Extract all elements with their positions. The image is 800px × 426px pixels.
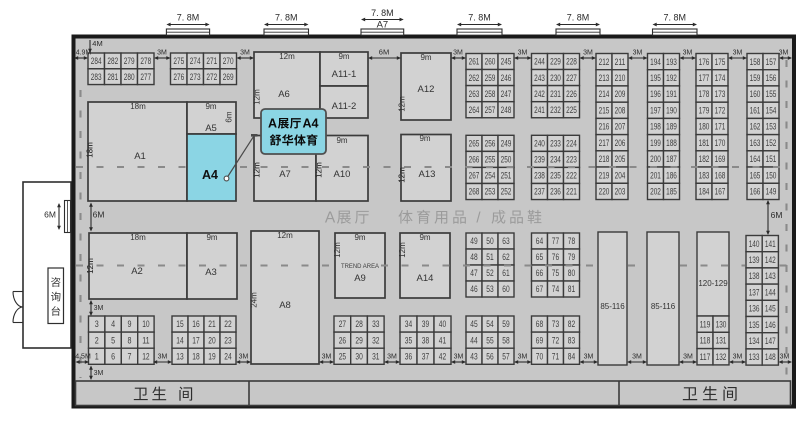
svg-text:19: 19 bbox=[208, 351, 215, 361]
svg-text:24m: 24m bbox=[250, 292, 259, 308]
svg-text:A12: A12 bbox=[418, 84, 435, 95]
svg-text:163: 163 bbox=[750, 138, 761, 148]
svg-text:59: 59 bbox=[502, 319, 509, 329]
svg-text:256: 256 bbox=[485, 139, 496, 149]
svg-text:3M: 3M bbox=[94, 370, 104, 377]
svg-text:7. 8M: 7. 8M bbox=[664, 13, 687, 23]
svg-text:181: 181 bbox=[699, 138, 710, 148]
svg-text:12m: 12m bbox=[333, 242, 342, 258]
svg-text:36: 36 bbox=[405, 351, 412, 361]
svg-text:79: 79 bbox=[568, 252, 575, 262]
svg-text:226: 226 bbox=[566, 89, 577, 99]
svg-text:84: 84 bbox=[568, 351, 575, 361]
svg-text:261: 261 bbox=[469, 57, 480, 67]
svg-text:51: 51 bbox=[486, 252, 493, 262]
svg-text:57: 57 bbox=[502, 351, 509, 361]
svg-text:48: 48 bbox=[470, 252, 477, 262]
svg-text:164: 164 bbox=[750, 154, 761, 164]
svg-text:246: 246 bbox=[501, 73, 512, 83]
svg-text:119: 119 bbox=[700, 319, 711, 330]
svg-text:72: 72 bbox=[552, 335, 559, 345]
svg-text:39: 39 bbox=[422, 319, 429, 329]
svg-text:131: 131 bbox=[716, 336, 727, 347]
svg-text:237: 237 bbox=[534, 187, 545, 197]
svg-text:202: 202 bbox=[650, 187, 661, 197]
svg-text:61: 61 bbox=[502, 268, 509, 278]
svg-text:133: 133 bbox=[749, 352, 760, 363]
svg-text:6M: 6M bbox=[771, 210, 783, 220]
svg-text:216: 216 bbox=[599, 122, 610, 132]
svg-text:173: 173 bbox=[715, 89, 726, 99]
svg-text:50: 50 bbox=[486, 236, 493, 246]
svg-text:TREND AREA: TREND AREA bbox=[341, 264, 379, 270]
svg-text:6M: 6M bbox=[44, 210, 56, 220]
svg-text:117: 117 bbox=[700, 352, 711, 363]
svg-text:147: 147 bbox=[765, 336, 776, 347]
svg-text:4.9M: 4.9M bbox=[76, 50, 92, 57]
svg-text:54: 54 bbox=[486, 319, 493, 329]
svg-text:12m: 12m bbox=[398, 96, 407, 112]
svg-text:159: 159 bbox=[750, 73, 761, 83]
svg-text:43: 43 bbox=[470, 351, 477, 361]
svg-text:3M: 3M bbox=[733, 50, 743, 57]
svg-text:244: 244 bbox=[534, 57, 545, 67]
svg-text:284: 284 bbox=[91, 56, 102, 66]
svg-text:7. 8M: 7. 8M bbox=[468, 13, 491, 23]
svg-text:210: 210 bbox=[615, 73, 626, 83]
svg-text:32: 32 bbox=[372, 335, 379, 345]
svg-text:1: 1 bbox=[95, 351, 99, 361]
svg-text:232: 232 bbox=[550, 105, 561, 115]
svg-text:201: 201 bbox=[650, 170, 661, 180]
svg-text:268: 268 bbox=[469, 187, 480, 197]
svg-text:12: 12 bbox=[142, 351, 149, 361]
svg-text:A7: A7 bbox=[279, 169, 291, 180]
svg-text:47: 47 bbox=[470, 268, 477, 278]
svg-text:151: 151 bbox=[766, 154, 777, 164]
svg-text:14: 14 bbox=[176, 335, 183, 345]
svg-text:177: 177 bbox=[699, 73, 710, 83]
svg-text:252: 252 bbox=[501, 187, 512, 197]
svg-text:83: 83 bbox=[568, 335, 575, 345]
svg-text:182: 182 bbox=[699, 154, 710, 164]
svg-text:68: 68 bbox=[536, 319, 543, 329]
svg-text:204: 204 bbox=[615, 170, 626, 180]
svg-text:80: 80 bbox=[568, 268, 575, 278]
svg-text:55: 55 bbox=[486, 335, 493, 345]
svg-text:29: 29 bbox=[355, 335, 362, 345]
svg-text:31: 31 bbox=[372, 351, 379, 361]
svg-text:198: 198 bbox=[650, 122, 661, 132]
svg-text:23: 23 bbox=[224, 335, 231, 345]
svg-text:238: 238 bbox=[534, 171, 545, 181]
svg-text:140: 140 bbox=[749, 239, 760, 250]
svg-text:141: 141 bbox=[765, 239, 776, 250]
svg-text:A4: A4 bbox=[202, 168, 218, 182]
svg-text:18m: 18m bbox=[86, 142, 95, 158]
svg-text:228: 228 bbox=[566, 57, 577, 67]
svg-text:273: 273 bbox=[190, 72, 201, 82]
svg-text:142: 142 bbox=[765, 255, 776, 266]
svg-text:176: 176 bbox=[699, 57, 710, 67]
svg-text:A11-1: A11-1 bbox=[332, 69, 357, 80]
svg-text:276: 276 bbox=[173, 72, 184, 82]
svg-text:257: 257 bbox=[485, 105, 496, 115]
svg-text:A7: A7 bbox=[377, 20, 389, 31]
svg-text:85-116: 85-116 bbox=[651, 302, 676, 311]
svg-text:179: 179 bbox=[699, 106, 710, 116]
svg-text:12m: 12m bbox=[253, 162, 262, 178]
svg-text:64: 64 bbox=[536, 236, 543, 246]
svg-text:167: 167 bbox=[715, 187, 726, 197]
svg-text:239: 239 bbox=[534, 155, 545, 165]
svg-text:3M: 3M bbox=[157, 50, 167, 57]
svg-text:212: 212 bbox=[599, 57, 610, 67]
svg-text:230: 230 bbox=[550, 73, 561, 83]
svg-text:18m: 18m bbox=[130, 102, 146, 111]
svg-text:170: 170 bbox=[715, 138, 726, 148]
svg-text:3M: 3M bbox=[94, 305, 104, 312]
svg-text:137: 137 bbox=[749, 287, 760, 298]
svg-text:217: 217 bbox=[599, 138, 610, 148]
svg-text:4.5M: 4.5M bbox=[75, 354, 91, 361]
svg-text:75: 75 bbox=[552, 268, 559, 278]
svg-text:44: 44 bbox=[470, 335, 477, 345]
svg-text:162: 162 bbox=[750, 122, 761, 132]
svg-text:60: 60 bbox=[502, 284, 509, 294]
svg-text:67: 67 bbox=[536, 284, 543, 294]
svg-text:195: 195 bbox=[650, 73, 661, 83]
svg-text:A: A bbox=[325, 210, 336, 227]
svg-text:282: 282 bbox=[107, 56, 118, 66]
svg-text:208: 208 bbox=[615, 106, 626, 116]
svg-text:A5: A5 bbox=[205, 123, 217, 134]
svg-text:58: 58 bbox=[502, 335, 509, 345]
svg-text:277: 277 bbox=[140, 72, 151, 82]
svg-text:3M: 3M bbox=[453, 50, 463, 57]
svg-text:262: 262 bbox=[469, 73, 480, 83]
svg-text:187: 187 bbox=[666, 154, 677, 164]
svg-text:241: 241 bbox=[534, 105, 545, 115]
svg-text:9m: 9m bbox=[419, 233, 430, 242]
svg-text:71: 71 bbox=[552, 351, 559, 361]
svg-text:138: 138 bbox=[749, 271, 760, 282]
svg-text:225: 225 bbox=[566, 105, 577, 115]
svg-text:278: 278 bbox=[140, 56, 151, 66]
svg-text:193: 193 bbox=[666, 57, 677, 67]
svg-text:274: 274 bbox=[190, 56, 201, 66]
svg-text:165: 165 bbox=[750, 170, 761, 180]
svg-text:9m: 9m bbox=[205, 102, 216, 111]
svg-text:215: 215 bbox=[599, 106, 610, 116]
svg-text:9m: 9m bbox=[354, 233, 365, 242]
svg-text:178: 178 bbox=[699, 89, 710, 99]
svg-text:52: 52 bbox=[486, 268, 493, 278]
svg-text:143: 143 bbox=[765, 271, 776, 282]
svg-text:242: 242 bbox=[534, 89, 545, 99]
svg-text:82: 82 bbox=[568, 319, 575, 329]
svg-text:33: 33 bbox=[372, 319, 379, 329]
svg-text:15: 15 bbox=[176, 319, 183, 329]
svg-text:40: 40 bbox=[439, 319, 446, 329]
svg-text:56: 56 bbox=[486, 351, 493, 361]
svg-text:148: 148 bbox=[765, 352, 776, 363]
svg-text:280: 280 bbox=[124, 72, 135, 82]
svg-text:3M: 3M bbox=[632, 354, 642, 361]
svg-text:184: 184 bbox=[699, 187, 710, 197]
svg-text:3M: 3M bbox=[780, 354, 790, 361]
svg-text:85-116: 85-116 bbox=[600, 302, 625, 311]
svg-text:199: 199 bbox=[650, 138, 661, 148]
svg-text:149: 149 bbox=[766, 187, 777, 197]
svg-text:145: 145 bbox=[765, 304, 776, 315]
svg-text:154: 154 bbox=[766, 106, 777, 116]
svg-text:3M: 3M bbox=[240, 50, 250, 57]
svg-text:27: 27 bbox=[339, 319, 346, 329]
svg-text:9m: 9m bbox=[419, 134, 430, 143]
svg-text:247: 247 bbox=[501, 89, 512, 99]
svg-text:156: 156 bbox=[766, 73, 777, 83]
svg-text:191: 191 bbox=[666, 89, 677, 99]
svg-text:65: 65 bbox=[536, 252, 543, 262]
svg-text:9m: 9m bbox=[420, 53, 431, 62]
svg-text:3M: 3M bbox=[518, 354, 528, 361]
svg-text:171: 171 bbox=[715, 122, 726, 132]
svg-text:12m: 12m bbox=[398, 242, 407, 258]
svg-text:196: 196 bbox=[650, 89, 661, 99]
svg-text:A6: A6 bbox=[278, 89, 290, 100]
svg-text:186: 186 bbox=[666, 170, 677, 180]
svg-text:254: 254 bbox=[485, 171, 496, 181]
svg-text:3M: 3M bbox=[322, 354, 332, 361]
svg-text:160: 160 bbox=[750, 89, 761, 99]
svg-text:259: 259 bbox=[485, 73, 496, 83]
svg-text:A3: A3 bbox=[205, 267, 217, 278]
svg-text:A4: A4 bbox=[303, 117, 319, 131]
svg-text:188: 188 bbox=[666, 138, 677, 148]
svg-text:264: 264 bbox=[469, 105, 480, 115]
svg-text:158: 158 bbox=[750, 57, 761, 67]
svg-text:272: 272 bbox=[206, 72, 217, 82]
svg-text:253: 253 bbox=[485, 187, 496, 197]
svg-text:243: 243 bbox=[534, 73, 545, 83]
svg-text:A13: A13 bbox=[419, 169, 436, 180]
svg-text:73: 73 bbox=[552, 319, 559, 329]
svg-text:6M: 6M bbox=[93, 210, 105, 220]
svg-text:203: 203 bbox=[615, 187, 626, 197]
svg-text:11: 11 bbox=[142, 335, 149, 345]
svg-text:62: 62 bbox=[502, 252, 509, 262]
svg-text:3M: 3M bbox=[733, 354, 743, 361]
svg-text:211: 211 bbox=[615, 57, 626, 67]
svg-text:157: 157 bbox=[766, 57, 777, 67]
svg-text:A10: A10 bbox=[334, 169, 351, 180]
svg-text:12m: 12m bbox=[279, 52, 295, 61]
svg-text:161: 161 bbox=[750, 106, 761, 116]
svg-text:153: 153 bbox=[766, 122, 777, 132]
svg-text:258: 258 bbox=[485, 89, 496, 99]
svg-text:136: 136 bbox=[749, 304, 760, 315]
svg-text:9m: 9m bbox=[206, 233, 217, 242]
svg-text:6m: 6m bbox=[225, 111, 234, 122]
svg-text:240: 240 bbox=[534, 139, 545, 149]
svg-text:22: 22 bbox=[224, 319, 231, 329]
svg-text:A14: A14 bbox=[417, 273, 434, 284]
svg-text:229: 229 bbox=[550, 57, 561, 67]
svg-text:251: 251 bbox=[501, 171, 512, 181]
svg-text:190: 190 bbox=[666, 106, 677, 116]
svg-text:266: 266 bbox=[469, 155, 480, 165]
svg-text:192: 192 bbox=[666, 73, 677, 83]
svg-text:77: 77 bbox=[552, 236, 559, 246]
svg-text:183: 183 bbox=[699, 170, 710, 180]
svg-text:20: 20 bbox=[208, 335, 215, 345]
svg-text:146: 146 bbox=[765, 320, 776, 331]
svg-text:166: 166 bbox=[750, 187, 761, 197]
svg-text:221: 221 bbox=[566, 187, 577, 197]
svg-text:213: 213 bbox=[599, 73, 610, 83]
svg-text:245: 245 bbox=[501, 57, 512, 67]
svg-text:18: 18 bbox=[192, 351, 199, 361]
svg-text:A2: A2 bbox=[131, 266, 143, 277]
svg-text:7. 8M: 7. 8M bbox=[371, 8, 394, 18]
svg-text:279: 279 bbox=[124, 56, 135, 66]
svg-text:134: 134 bbox=[749, 336, 760, 347]
svg-text:189: 189 bbox=[666, 122, 677, 132]
svg-text:271: 271 bbox=[206, 56, 217, 66]
svg-text:25: 25 bbox=[339, 351, 346, 361]
svg-text:4M: 4M bbox=[92, 39, 102, 48]
svg-text:74: 74 bbox=[552, 284, 559, 294]
svg-text:5: 5 bbox=[111, 335, 115, 345]
svg-text:12m: 12m bbox=[315, 162, 324, 178]
svg-text:9m: 9m bbox=[338, 52, 349, 61]
svg-text:2: 2 bbox=[95, 335, 99, 345]
svg-text:34: 34 bbox=[405, 319, 412, 329]
svg-text:209: 209 bbox=[615, 89, 626, 99]
svg-text:8: 8 bbox=[128, 335, 132, 345]
svg-text:37: 37 bbox=[422, 351, 429, 361]
svg-text:197: 197 bbox=[650, 106, 661, 116]
svg-text:3M: 3M bbox=[683, 50, 693, 57]
svg-text:A8: A8 bbox=[279, 300, 291, 311]
svg-text:70: 70 bbox=[536, 351, 543, 361]
svg-text:281: 281 bbox=[107, 72, 118, 82]
svg-text:13: 13 bbox=[176, 351, 183, 361]
svg-text:A11-2: A11-2 bbox=[332, 101, 357, 112]
svg-text:275: 275 bbox=[173, 56, 184, 66]
svg-text:135: 135 bbox=[749, 320, 760, 331]
svg-text:49: 49 bbox=[470, 236, 477, 246]
svg-text:26: 26 bbox=[339, 335, 346, 345]
svg-text:18m: 18m bbox=[130, 233, 146, 242]
svg-text:207: 207 bbox=[615, 122, 626, 132]
svg-text:152: 152 bbox=[766, 138, 777, 148]
svg-text:76: 76 bbox=[552, 252, 559, 262]
svg-text:249: 249 bbox=[501, 139, 512, 149]
svg-text:17: 17 bbox=[192, 335, 199, 345]
svg-text:38: 38 bbox=[422, 335, 429, 345]
svg-text:168: 168 bbox=[715, 170, 726, 180]
svg-text:3M: 3M bbox=[633, 50, 643, 57]
svg-text:69: 69 bbox=[536, 335, 543, 345]
svg-text:206: 206 bbox=[615, 138, 626, 148]
svg-text:3M: 3M bbox=[584, 354, 594, 361]
svg-text:218: 218 bbox=[599, 154, 610, 164]
svg-text:7. 8M: 7. 8M bbox=[275, 13, 298, 23]
svg-text:130: 130 bbox=[716, 319, 727, 330]
svg-text:227: 227 bbox=[566, 73, 577, 83]
svg-text:118: 118 bbox=[700, 336, 711, 347]
svg-text:194: 194 bbox=[650, 57, 661, 67]
svg-text:174: 174 bbox=[715, 73, 726, 83]
svg-text:24: 24 bbox=[224, 351, 231, 361]
svg-text:35: 35 bbox=[405, 335, 412, 345]
svg-text:A9: A9 bbox=[354, 273, 366, 284]
svg-text:42: 42 bbox=[439, 351, 446, 361]
svg-text:16: 16 bbox=[192, 319, 199, 329]
svg-text:233: 233 bbox=[550, 139, 561, 149]
svg-text:234: 234 bbox=[550, 155, 561, 165]
svg-text:265: 265 bbox=[469, 139, 480, 149]
svg-text:3M: 3M bbox=[518, 50, 528, 57]
svg-text:81: 81 bbox=[568, 284, 575, 294]
svg-text:3M: 3M bbox=[239, 354, 249, 361]
svg-text:224: 224 bbox=[566, 139, 577, 149]
svg-text:3M: 3M bbox=[583, 50, 593, 57]
svg-text:3M: 3M bbox=[454, 354, 464, 361]
svg-text:250: 250 bbox=[501, 155, 512, 165]
svg-text:3: 3 bbox=[95, 319, 99, 329]
svg-text:155: 155 bbox=[766, 89, 777, 99]
svg-text:30: 30 bbox=[355, 351, 362, 361]
svg-text:260: 260 bbox=[485, 57, 496, 67]
svg-text:185: 185 bbox=[666, 187, 677, 197]
svg-text:28: 28 bbox=[355, 319, 362, 329]
svg-text:132: 132 bbox=[716, 352, 727, 363]
svg-text:7: 7 bbox=[128, 351, 132, 361]
svg-text:12m: 12m bbox=[253, 89, 262, 105]
svg-text:205: 205 bbox=[615, 154, 626, 164]
svg-text:46: 46 bbox=[470, 284, 477, 294]
svg-text:9: 9 bbox=[128, 319, 132, 329]
svg-text:3M: 3M bbox=[158, 354, 168, 361]
svg-text:66: 66 bbox=[536, 268, 543, 278]
svg-text:41: 41 bbox=[439, 335, 446, 345]
svg-text:9m: 9m bbox=[336, 136, 347, 145]
svg-text:3M: 3M bbox=[387, 354, 397, 361]
svg-text:7. 8M: 7. 8M bbox=[177, 13, 200, 23]
svg-text:6: 6 bbox=[111, 351, 115, 361]
svg-text:222: 222 bbox=[566, 171, 577, 181]
svg-text:63: 63 bbox=[502, 236, 509, 246]
svg-text:236: 236 bbox=[550, 187, 561, 197]
svg-text:255: 255 bbox=[485, 155, 496, 165]
svg-text:231: 231 bbox=[550, 89, 561, 99]
svg-text:78: 78 bbox=[568, 236, 575, 246]
svg-text:150: 150 bbox=[766, 170, 777, 180]
svg-text:283: 283 bbox=[91, 72, 102, 82]
svg-text:12m: 12m bbox=[86, 258, 95, 274]
svg-text:172: 172 bbox=[715, 106, 726, 116]
svg-text:3M: 3M bbox=[779, 50, 789, 57]
svg-text:6M: 6M bbox=[379, 48, 389, 57]
svg-text:120-129: 120-129 bbox=[698, 279, 728, 288]
svg-text:169: 169 bbox=[715, 154, 726, 164]
svg-text:3M: 3M bbox=[683, 354, 693, 361]
svg-text:7. 8M: 7. 8M bbox=[567, 13, 590, 23]
svg-text:139: 139 bbox=[749, 255, 760, 266]
